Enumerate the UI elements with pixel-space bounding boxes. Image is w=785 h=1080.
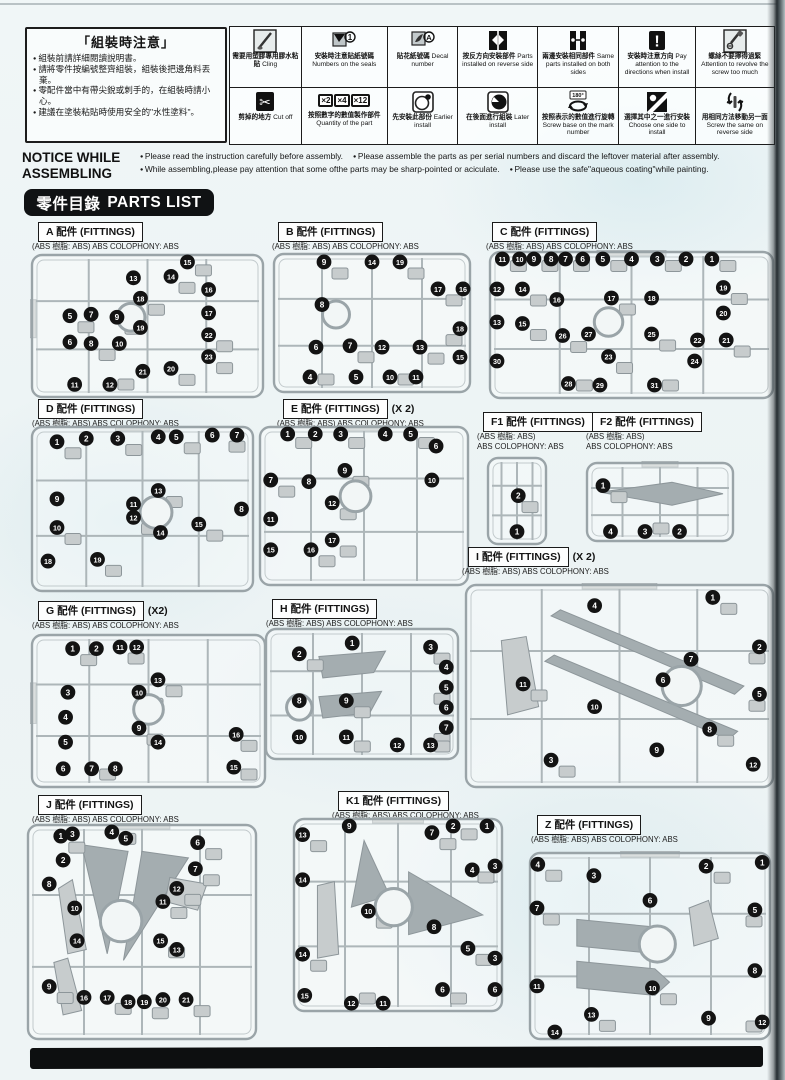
part-marker-J-18: 18 [121,994,136,1009]
assembly-notice-list: 組裝前請詳細閱讀說明書。請將零件按編號整齊組裝，組裝後把邊角料丟棄。零配件當中有… [33,53,219,118]
svg-text:2: 2 [94,645,99,654]
section-header-Z: Z 配件 (FITTINGS) [537,815,641,835]
part-marker-A-23: 23 [201,349,216,364]
part-marker-C-31: 31 [647,378,662,393]
screw-warning-icon [723,29,747,53]
part-marker-G-12: 12 [129,640,144,655]
part-marker-I-5: 5 [752,687,767,702]
part-marker-J-14: 14 [70,933,85,948]
part-marker-J-13: 13 [169,942,184,957]
svg-text:3: 3 [338,430,343,439]
legend-cell-screw-base: 180°按照表示的數值進行旋轉 Screw base on the mark n… [538,88,620,144]
notice-while-assembling: NOTICE WHILE ASSEMBLING Please read the … [22,150,770,181]
svg-text:4: 4 [308,373,313,382]
legend-caption: 按照數字的數值製作部件 Quantity of the part [303,112,386,128]
svg-text:10: 10 [71,904,79,913]
svg-text:11: 11 [499,255,507,264]
svg-text:13: 13 [154,676,162,685]
svg-text:10: 10 [386,373,394,382]
svg-text:2: 2 [516,492,521,501]
svg-text:2: 2 [451,822,456,831]
svg-text:5: 5 [123,834,128,843]
svg-text:10: 10 [648,984,656,993]
part-marker-A-20: 20 [164,361,179,376]
part-marker-E-12: 12 [325,495,340,510]
part-marker-B-7: 7 [343,338,358,353]
part-marker-J-21: 21 [179,992,194,1007]
svg-text:3: 3 [549,756,554,765]
svg-text:9: 9 [55,495,60,504]
part-marker-K1-14: 14 [295,947,310,962]
part-marker-A-7: 7 [84,307,99,322]
section-multiplier-I: (X 2) [573,551,596,563]
svg-text:9: 9 [347,822,352,831]
svg-text:2: 2 [61,856,66,865]
svg-text:10: 10 [295,733,303,742]
assembly-notice-box: 「組裝時注意」 組裝前請詳細閱讀說明書。請將零件按編號整齊組裝，組裝後把邊角料丟… [25,27,227,143]
legend-caption: 按照表示的數值進行旋轉 Screw base on the mark numbe… [539,114,618,137]
svg-text:A: A [426,33,432,42]
parts-list-badge: 零件目錄 PARTS LIST [24,189,214,216]
svg-text:21: 21 [182,996,190,1005]
svg-text:5: 5 [601,255,606,264]
scan-edge-top [0,3,785,5]
part-marker-J-16: 16 [77,990,92,1005]
part-marker-A-14: 14 [164,269,179,284]
legend-caption: 需要用塑膠專用膠水粘貼 Cling [231,53,300,69]
svg-text:3: 3 [428,643,433,652]
svg-text:1: 1 [515,528,520,537]
svg-text:7: 7 [348,342,353,351]
part-marker-B-12: 12 [375,340,390,355]
section-label-F1: F1 配件 (FITTINGS) [483,412,593,432]
part-marker-G-11: 11 [113,640,128,655]
svg-text:10: 10 [516,255,524,264]
svg-text:10: 10 [135,688,143,697]
glue-brush-icon [253,29,277,53]
part-marker-C-11: 11 [495,252,510,267]
part-marker-I-11: 11 [516,677,531,692]
svg-text:21: 21 [722,336,730,345]
svg-text:18: 18 [456,325,464,334]
svg-text:15: 15 [267,546,275,555]
svg-text:1: 1 [59,832,64,841]
svg-text:5: 5 [444,683,449,692]
legend-caption-en: Screw base on the mark number [543,122,614,137]
later-install-icon [486,90,510,114]
svg-text:9: 9 [706,1014,711,1023]
part-marker-E-2: 2 [308,427,323,442]
legend-caption: 用相同方法移動另一面 Screw the same on reverse sid… [697,114,773,137]
part-marker-B-13: 13 [413,340,428,355]
legend-caption: 在後面進行組裝 Later install [459,114,535,130]
assembly-notice-item: 組裝前請詳細閱讀說明書。 [33,53,219,64]
sprue-diagram-A: 151314161817579192268102321201112 [30,253,265,399]
svg-text:16: 16 [205,286,213,295]
svg-text:5: 5 [408,430,413,439]
section-header-F1: F1 配件 (FITTINGS) [483,412,593,432]
part-marker-D-7: 7 [230,428,245,443]
section-header-B: B 配件 (FITTINGS) [278,222,383,242]
svg-text:23: 23 [205,353,213,362]
svg-text:13: 13 [129,274,137,283]
part-marker-J-20: 20 [155,992,170,1007]
svg-text:19: 19 [719,284,727,293]
part-marker-D-19: 19 [90,552,105,567]
part-marker-A-6: 6 [63,335,78,350]
section-header-F2: F2 配件 (FITTINGS) [592,412,702,432]
notice-while-assembling-bullets: Please read the instruction carefully be… [140,150,770,176]
svg-text:13: 13 [299,831,307,840]
svg-text:4: 4 [592,602,597,611]
part-marker-C-15: 15 [515,316,530,331]
part-marker-G-10: 10 [132,685,147,700]
svg-text:6: 6 [648,896,653,905]
part-marker-K1-7: 7 [425,825,440,840]
legend-caption: 剪掉的地方 Cut off [238,114,292,122]
notice-bullet-line: While assembling,please pay attention th… [140,163,770,176]
legend-cell-cut-off: ✂剪掉的地方 Cut off [230,88,302,144]
svg-text:10: 10 [591,703,599,712]
part-marker-H-4: 4 [439,660,454,675]
svg-text:1: 1 [350,639,355,648]
svg-text:9: 9 [532,255,537,264]
part-marker-J-11: 11 [155,894,170,909]
part-marker-K1-1: 1 [480,819,495,834]
svg-text:1: 1 [348,33,353,42]
part-marker-K1-4: 4 [465,863,480,878]
svg-text:6: 6 [195,839,200,848]
svg-text:16: 16 [553,296,561,305]
legend-caption-en: Cut off [271,114,292,121]
part-marker-C-12: 12 [490,282,505,297]
svg-text:20: 20 [159,996,167,1005]
svg-text:2: 2 [677,528,682,537]
svg-text:9: 9 [322,258,327,267]
both-sides-icon [566,29,590,53]
part-marker-C-26: 26 [555,328,570,343]
part-marker-A-5: 5 [63,308,78,323]
part-marker-J-17: 17 [100,990,115,1005]
legend-caption: 安裝時注意方向 Pay attention to the directions … [620,53,693,76]
part-marker-G-5: 5 [58,735,73,750]
part-marker-H-12: 12 [390,738,405,753]
svg-text:13: 13 [416,343,424,352]
legend-cell-choose-side: 選擇其中之一進行安裝 Choose one side to install [619,88,695,144]
svg-text:28: 28 [564,380,572,389]
part-marker-B-16: 16 [456,282,471,297]
svg-text:6: 6 [68,338,73,347]
assembly-notice-item: 零配件當中有帶尖銳或刺手的，在組裝時請小心。 [33,85,219,107]
part-marker-C-5: 5 [595,252,610,267]
legend-cell-later-install: 在後面進行組裝 Later install [458,88,537,144]
part-marker-C-9: 9 [527,252,542,267]
part-marker-Z-7: 7 [530,901,545,916]
part-marker-I-4: 4 [587,598,602,613]
svg-text:12: 12 [749,760,757,769]
part-marker-H-7: 7 [439,720,454,735]
svg-text:4: 4 [608,528,613,537]
svg-text:12: 12 [493,285,501,294]
legend-cell-screw-reverse: 用相同方法移動另一面 Screw the same on reverse sid… [696,88,774,144]
section-header-J: J 配件 (FITTINGS) [38,795,142,815]
screw-base-icon: 180° [566,90,590,114]
part-marker-Z-14: 14 [547,1025,562,1040]
sprue-diagram-B: 91419171681867121315451011 [272,252,472,394]
part-marker-J-3: 3 [65,827,80,842]
part-marker-B-18: 18 [453,321,468,336]
part-marker-F1-1: 1 [510,524,525,539]
svg-text:4: 4 [110,828,115,837]
svg-text:7: 7 [89,310,94,319]
earlier-install-icon [411,90,435,114]
part-marker-C-7: 7 [558,252,573,267]
part-marker-C-13: 13 [490,315,505,330]
legend-cell-earlier-install: 先安裝此部份 Earlier install [388,88,459,144]
svg-text:9: 9 [47,983,52,992]
part-marker-A-10: 10 [112,336,127,351]
part-marker-B-10: 10 [383,370,398,385]
svg-text:7: 7 [535,904,540,913]
notice-bullet: Please read the instruction carefully be… [140,151,343,161]
part-marker-E-17: 17 [325,533,340,548]
part-marker-Z-2: 2 [699,859,714,874]
svg-text:4: 4 [470,866,475,875]
svg-text:2: 2 [313,430,318,439]
part-marker-B-5: 5 [349,370,364,385]
svg-text:6: 6 [314,343,319,352]
svg-text:12: 12 [347,999,355,1008]
part-marker-H-2: 2 [292,646,307,661]
notice-bullet: Please assemble the parts as per serial … [353,151,719,161]
part-marker-G-8: 8 [108,761,123,776]
section-header-A: A 配件 (FITTINGS) [38,222,143,242]
svg-text:7: 7 [444,724,449,733]
svg-text:15: 15 [456,353,464,362]
svg-text:13: 13 [427,741,435,750]
svg-text:6: 6 [210,431,215,440]
svg-text:!: ! [654,34,659,51]
svg-text:14: 14 [154,738,162,747]
svg-text:3: 3 [655,255,660,264]
svg-text:17: 17 [607,294,615,303]
part-marker-C-30: 30 [490,354,505,369]
part-marker-K1-6: 6 [435,982,450,997]
icon-legend-table: 需要用塑膠專用膠水粘貼 Cling1安裝時注意貼紙號碼 Numbers on t… [229,26,775,145]
quantity-box: ×4 [334,94,349,107]
sprue-diagram-I: 142711651089312 [464,583,775,789]
legend-cell-decal-brush: A貼花紙號碼 Decal number [388,27,459,88]
section-label-F2: F2 配件 (FITTINGS) [592,412,702,432]
svg-text:4: 4 [535,860,540,869]
part-marker-F2-4: 4 [603,524,618,539]
part-marker-Z-5: 5 [748,903,763,918]
svg-text:16: 16 [80,993,88,1002]
part-marker-H-10: 10 [292,729,307,744]
part-marker-A-21: 21 [135,364,150,379]
svg-text:11: 11 [412,373,420,382]
svg-text:6: 6 [434,442,439,451]
legend-caption: 選擇其中之一進行安裝 Choose one side to install [620,114,693,137]
notice-while-assembling-title: NOTICE WHILE ASSEMBLING [22,150,134,181]
svg-text:8: 8 [89,340,94,349]
part-marker-D-5: 5 [169,429,184,444]
legend-caption-en: Numbers on the seals [312,61,376,68]
part-marker-B-8: 8 [315,297,330,312]
part-marker-C-27: 27 [581,327,596,342]
sprue-diagram-Z: 4321765111081391214 [528,851,772,1041]
part-marker-C-6: 6 [575,252,590,267]
part-marker-Z-9: 9 [701,1011,716,1026]
part-marker-J-6: 6 [190,835,205,850]
svg-text:1: 1 [711,593,716,602]
svg-text:10: 10 [428,476,436,485]
part-marker-G-1: 1 [65,641,80,656]
part-marker-A-8: 8 [84,336,99,351]
part-marker-E-11: 11 [263,512,278,527]
part-marker-J-10: 10 [67,901,82,916]
part-marker-J-9: 9 [42,979,57,994]
svg-text:6: 6 [661,676,666,685]
part-marker-C-10: 10 [512,252,527,267]
part-marker-F2-2: 2 [672,524,687,539]
part-marker-D-2: 2 [79,431,94,446]
section-label-B: B 配件 (FITTINGS) [278,222,383,242]
svg-text:17: 17 [205,309,213,318]
legend-caption: 安裝時注意貼紙號碼 Numbers on the seals [303,53,386,69]
part-marker-Z-4: 4 [530,857,545,872]
svg-text:15: 15 [195,520,203,529]
svg-text:14: 14 [368,258,376,267]
svg-text:12: 12 [378,343,386,352]
sprue-diagram-J: 134562781210111415139161718192021 [26,823,258,1041]
svg-text:8: 8 [320,301,325,310]
sprue-diagram-F1: 21 [486,456,548,546]
svg-text:14: 14 [299,876,307,885]
reverse-side-icon [486,29,510,53]
svg-text:2: 2 [704,862,709,871]
svg-text:6: 6 [580,255,585,264]
part-marker-G-15: 15 [226,760,241,775]
svg-text:9: 9 [655,746,660,755]
part-marker-C-2: 2 [679,252,694,267]
part-marker-Z-8: 8 [748,963,763,978]
svg-text:4: 4 [383,430,388,439]
cut-off-icon: ✂ [253,90,277,114]
svg-text:19: 19 [94,555,102,564]
svg-text:9: 9 [137,724,142,733]
svg-text:2: 2 [297,650,302,659]
part-marker-K1-8: 8 [427,919,442,934]
legend-caption-en: Cling [260,61,277,68]
svg-text:11: 11 [343,733,351,742]
part-marker-F2-1: 1 [596,478,611,493]
part-marker-C-23: 23 [601,349,616,364]
part-marker-K1-5: 5 [461,941,476,956]
svg-text:6: 6 [493,985,498,994]
svg-text:11: 11 [533,982,541,991]
svg-text:9: 9 [344,697,349,706]
part-marker-K1-6: 6 [488,982,503,997]
part-marker-J-2: 2 [56,853,71,868]
part-marker-G-14: 14 [151,735,166,750]
quantity-box: ×2 [318,94,333,107]
part-marker-G-4: 4 [58,710,73,725]
part-marker-G-3: 3 [61,685,76,700]
part-marker-D-15: 15 [191,517,206,532]
svg-text:11: 11 [116,643,124,652]
section-material-I: (ABS 樹脂: ABS) ABS COLOPHONY: ABS [462,567,609,577]
section-label-I: I 配件 (FITTINGS) [468,547,569,567]
part-marker-H-6: 6 [439,700,454,715]
choose-side-icon [645,90,669,114]
sticker-number-icon: 1 [332,29,356,53]
legend-caption-zh: 在後面進行組裝 [466,114,512,121]
svg-text:2: 2 [757,643,762,652]
part-marker-A-12: 12 [103,377,118,392]
part-marker-I-1: 1 [705,590,720,605]
svg-text:3: 3 [66,688,71,697]
svg-text:5: 5 [757,690,762,699]
part-marker-C-8: 8 [544,252,559,267]
legend-cell-reverse-side: 按反方向安裝部件 Parts installed on reverse side [458,27,537,88]
svg-text:12: 12 [106,380,114,389]
svg-text:16: 16 [232,730,240,739]
part-marker-Z-3: 3 [586,868,601,883]
legend-caption-zh: 螺絲不要擰得過緊 [708,53,761,60]
part-marker-I-12: 12 [746,757,761,772]
svg-text:11: 11 [130,500,138,509]
svg-text:26: 26 [559,332,567,341]
legend-caption-zh: 按照表示的數值進行旋轉 [542,114,615,121]
svg-text:1: 1 [285,430,290,439]
part-marker-B-15: 15 [453,350,468,365]
part-marker-E-3: 3 [333,427,348,442]
svg-text:15: 15 [518,320,526,329]
part-marker-A-15: 15 [180,255,195,270]
part-marker-D-8: 8 [234,502,249,517]
svg-text:15: 15 [183,258,191,267]
svg-text:20: 20 [167,364,175,373]
svg-text:23: 23 [605,353,613,362]
part-marker-B-14: 14 [365,255,380,270]
part-marker-K1-12: 12 [344,996,359,1011]
part-marker-C-20: 20 [716,306,731,321]
part-marker-G-7: 7 [84,761,99,776]
part-marker-F1-2: 2 [511,488,526,503]
part-marker-E-7: 7 [263,473,278,488]
section-label-E: E 配件 (FITTINGS) [283,399,388,419]
part-marker-J-4: 4 [104,825,119,840]
legend-cell-direction-warning: !安裝時注意方向 Pay attention to the directions… [619,27,695,88]
part-marker-C-28: 28 [561,376,576,391]
legend-caption-zh: 選擇其中之一進行安裝 [624,114,690,121]
svg-text:7: 7 [235,431,240,440]
part-marker-C-1: 1 [704,252,719,267]
svg-text:14: 14 [299,950,307,959]
svg-text:7: 7 [268,476,273,485]
legend-cell-glue-brush: 需要用塑膠專用膠水粘貼 Cling [230,27,302,88]
part-marker-E-9: 9 [338,463,353,478]
legend-caption-zh: 兩邊安裝相同部件 [542,53,595,60]
svg-text:5: 5 [68,312,73,321]
part-marker-K1-14: 14 [295,872,310,887]
svg-text:3: 3 [592,872,597,881]
part-marker-A-22: 22 [201,327,216,342]
part-marker-K1-2: 2 [446,819,461,834]
svg-text:18: 18 [124,998,132,1007]
part-marker-K1-10: 10 [361,904,376,919]
